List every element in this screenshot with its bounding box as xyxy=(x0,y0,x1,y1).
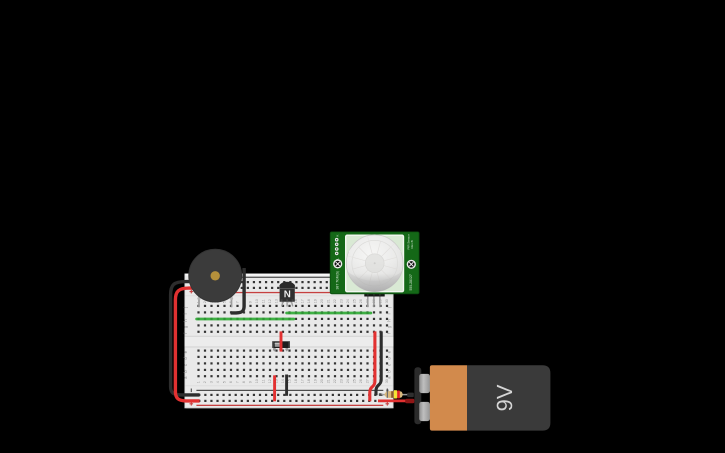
svg-text:20: 20 xyxy=(320,299,324,303)
svg-text:18: 18 xyxy=(307,379,311,383)
svg-text:11: 11 xyxy=(262,299,266,303)
svg-text:21: 21 xyxy=(327,299,331,303)
svg-text:9: 9 xyxy=(249,301,253,303)
svg-text:i: i xyxy=(183,313,188,314)
svg-text:19: 19 xyxy=(314,379,318,383)
svg-text:2: 2 xyxy=(203,381,207,383)
svg-text:26: 26 xyxy=(359,379,363,383)
svg-text:20: 20 xyxy=(320,379,324,383)
svg-text:16: 16 xyxy=(294,299,298,303)
svg-text:23: 23 xyxy=(340,379,344,383)
svg-text:10: 10 xyxy=(255,299,259,303)
svg-text:2: 2 xyxy=(203,301,207,303)
svg-text:22: 22 xyxy=(333,299,337,303)
svg-text:c: c xyxy=(386,364,391,366)
svg-text:555-28027: 555-28027 xyxy=(409,274,413,290)
svg-text:23: 23 xyxy=(340,299,344,303)
svg-text:5: 5 xyxy=(223,301,227,303)
svg-text:22: 22 xyxy=(333,379,337,383)
svg-text:8: 8 xyxy=(242,381,246,383)
svg-text:30: 30 xyxy=(385,299,389,303)
svg-text:4: 4 xyxy=(216,381,220,383)
svg-text:i: i xyxy=(386,313,391,314)
svg-text:7: 7 xyxy=(236,301,240,303)
svg-text:12: 12 xyxy=(268,299,272,303)
svg-text:j: j xyxy=(386,307,391,309)
svg-text:5: 5 xyxy=(223,381,227,383)
svg-text:Rev B: Rev B xyxy=(410,240,414,248)
svg-text:38T 7GM(S): 38T 7GM(S) xyxy=(335,271,339,290)
svg-text:j: j xyxy=(183,307,188,309)
svg-text:16: 16 xyxy=(294,379,298,383)
svg-text:1: 1 xyxy=(197,381,201,383)
svg-text:12: 12 xyxy=(268,379,272,383)
svg-text:K: K xyxy=(335,235,339,237)
svg-text:25: 25 xyxy=(353,299,357,303)
svg-text:17: 17 xyxy=(301,299,305,303)
svg-text:18: 18 xyxy=(307,299,311,303)
svg-text:11: 11 xyxy=(262,379,266,383)
svg-text:6: 6 xyxy=(229,381,233,383)
svg-text:24: 24 xyxy=(346,379,350,383)
svg-text:26: 26 xyxy=(359,299,363,303)
svg-text:14: 14 xyxy=(281,379,285,383)
svg-text:7: 7 xyxy=(236,381,240,383)
svg-text:27: 27 xyxy=(366,379,370,383)
svg-text:9: 9 xyxy=(249,381,253,383)
svg-text:13: 13 xyxy=(275,299,279,303)
svg-text:21: 21 xyxy=(327,379,331,383)
svg-text:15: 15 xyxy=(288,379,292,383)
svg-text:17: 17 xyxy=(301,379,305,383)
svg-text:3: 3 xyxy=(210,381,214,383)
svg-text:10: 10 xyxy=(255,379,259,383)
svg-text:c: c xyxy=(183,364,188,366)
svg-text:25: 25 xyxy=(353,379,357,383)
svg-text:24: 24 xyxy=(346,299,350,303)
svg-text:19: 19 xyxy=(314,299,318,303)
